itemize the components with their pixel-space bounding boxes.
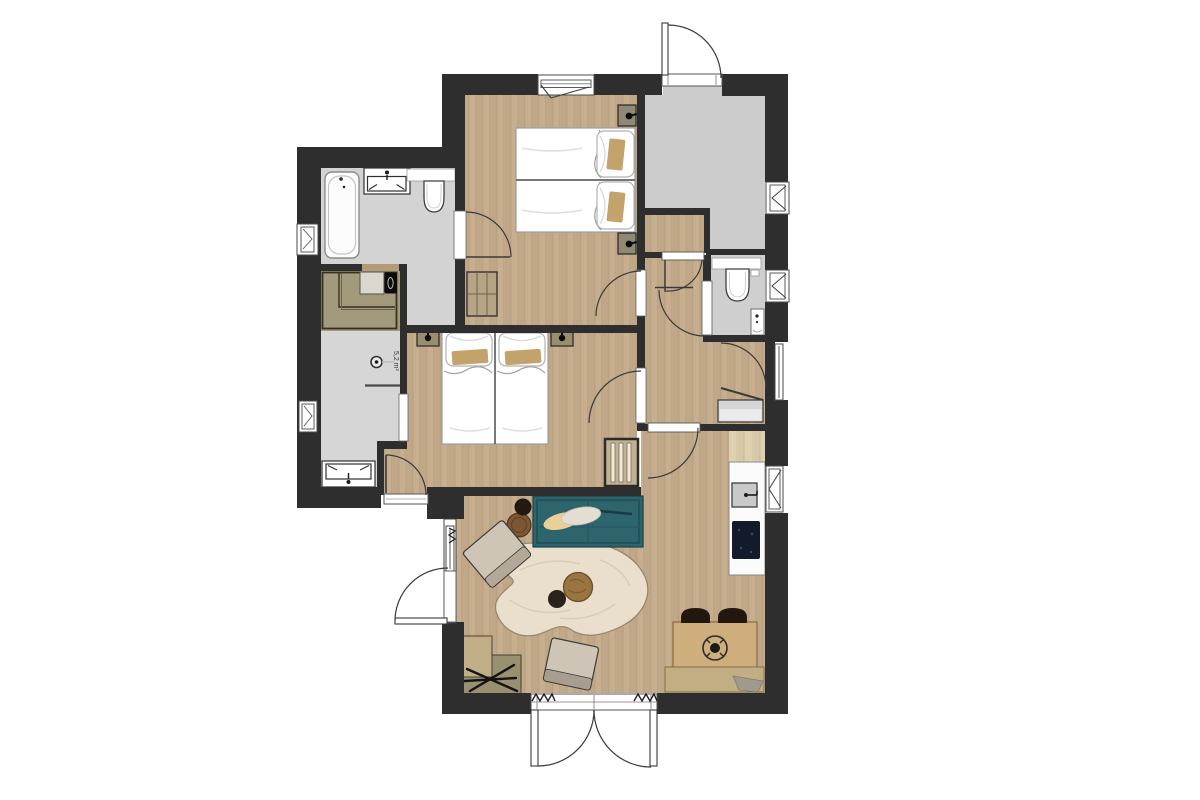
svg-text:5,2 m²: 5,2 m² (392, 351, 399, 372)
